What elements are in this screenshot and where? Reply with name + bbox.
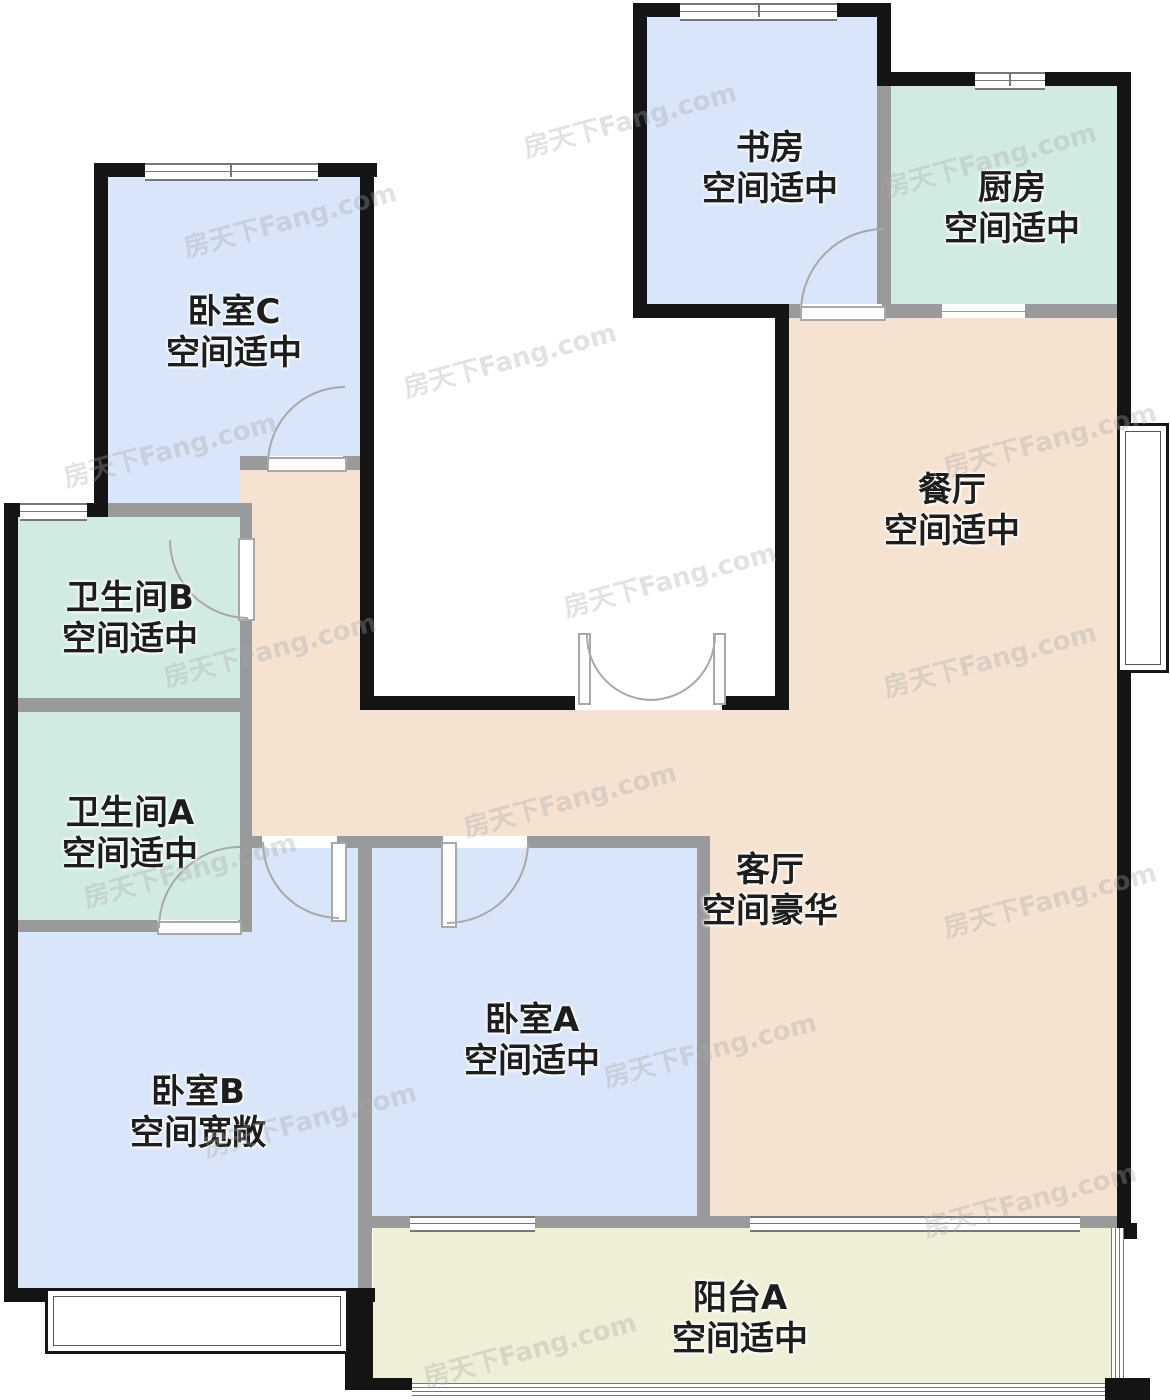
kitchen-label: 厨房 空间适中 xyxy=(887,168,1137,250)
room-condition: 空间适中 xyxy=(645,169,895,210)
wall xyxy=(1117,667,1131,1223)
room-name: 餐厅 xyxy=(827,470,1077,511)
balcony-railing xyxy=(1111,1228,1124,1396)
room-condition: 空间适中 xyxy=(615,1319,865,1360)
bay-window xyxy=(45,1288,349,1354)
entry-door-left-arc xyxy=(586,635,652,701)
wall xyxy=(345,1378,412,1390)
wall xyxy=(633,304,789,318)
room-name: 卫生间A xyxy=(10,793,250,834)
wall xyxy=(18,698,252,712)
room-condition: 空间适中 xyxy=(10,834,250,875)
room-name: 客厅 xyxy=(645,850,895,891)
kitchen-opening xyxy=(942,304,1025,318)
dining-label: 餐厅 空间适中 xyxy=(827,470,1077,552)
room-condition: 空间适中 xyxy=(10,619,250,660)
room-condition: 空间适中 xyxy=(407,1041,657,1082)
room-name: 卫生间B xyxy=(10,578,250,619)
window xyxy=(410,1216,535,1232)
room-name: 卧室A xyxy=(407,1000,657,1041)
balcony-a-label: 阳台A 空间适中 xyxy=(615,1278,865,1360)
bay-window xyxy=(1117,423,1169,673)
room-name: 阳台A xyxy=(615,1278,865,1319)
room-condition: 空间豪华 xyxy=(645,891,895,932)
window-divider xyxy=(230,163,232,177)
room-condition: 空间适中 xyxy=(827,511,1077,552)
study-label: 书房 空间适中 xyxy=(645,128,895,210)
living-label: 客厅 空间豪华 xyxy=(645,850,895,932)
window-divider xyxy=(758,3,760,17)
wall xyxy=(360,163,374,710)
window xyxy=(20,503,87,521)
bedroom-a-label: 卧室A 空间适中 xyxy=(407,1000,657,1082)
room-name: 厨房 xyxy=(887,168,1137,209)
room-condition: 空间适中 xyxy=(887,209,1137,250)
wall xyxy=(108,503,240,517)
bedroom-b-label: 卧室B 空间宽敞 xyxy=(73,1072,323,1154)
entry-door-right-arc xyxy=(650,635,716,701)
wall xyxy=(94,163,108,517)
room-condition: 空间适中 xyxy=(109,333,359,374)
bathroom-a-label: 卫生间A 空间适中 xyxy=(10,793,250,875)
bedroom-c-label: 卧室C 空间适中 xyxy=(109,292,359,374)
wall xyxy=(345,1288,373,1390)
watermark: 房天下Fang.com xyxy=(399,312,620,404)
wall xyxy=(775,304,789,710)
window-divider xyxy=(1009,72,1011,86)
wall xyxy=(1105,1378,1150,1400)
bathroom-b-label: 卫生间B 空间适中 xyxy=(10,578,250,660)
watermark: 房天下Fang.com xyxy=(559,532,780,624)
balcony-sliding-window xyxy=(750,1216,1080,1232)
room-condition: 空间宽敞 xyxy=(73,1113,323,1154)
floorplan: 卧室C 空间适中 书房 空间适中 厨房 空间适中 餐厅 空间适中 卫生间B 空间… xyxy=(0,0,1170,1400)
room-name: 书房 xyxy=(645,128,895,169)
hallway-area xyxy=(240,456,374,710)
room-name: 卧室C xyxy=(109,292,359,333)
balcony-railing xyxy=(412,1383,1111,1396)
room-name: 卧室B xyxy=(73,1072,323,1113)
